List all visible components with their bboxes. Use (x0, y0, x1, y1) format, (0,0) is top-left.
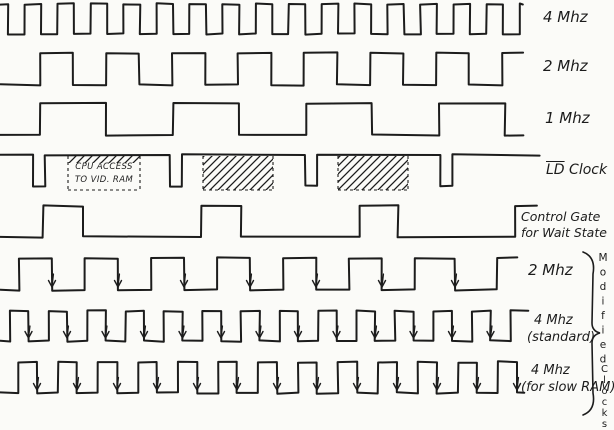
label-ld-overline: LD (546, 162, 565, 178)
label-1mhz: 1 Mhz (545, 110, 590, 127)
label-ld-clock-rest: Clock (565, 162, 608, 178)
label-modified-4mhz-standard: 4 Mhz (standard) (527, 313, 595, 346)
label-ld-clock: LD Clock (546, 162, 607, 178)
label-4mhz-standard-line2: (standard) (527, 330, 595, 347)
label-control-gate: Control Gate for Wait State (521, 209, 607, 241)
label-control-gate-line1: Control Gate (521, 209, 607, 225)
label-4mhz-standard-line1: 4 Mhz (527, 313, 595, 330)
label-2mhz: 2 Mhz (543, 58, 588, 75)
cpu-access-line1: CPU ACCESS (68, 161, 140, 174)
label-clocks-vertical: Clocks (599, 364, 610, 430)
cpu-access-line2: TO VID. RAM (68, 174, 140, 187)
cpu-access-annotation: CPU ACCESS TO VID. RAM (68, 161, 140, 189)
label-modified-vertical: Modified (597, 252, 609, 368)
timing-diagram-page: CPU ACCESS TO VID. RAM 4 Mhz 2 Mhz 1 Mhz… (0, 0, 614, 419)
label-control-gate-line2: for Wait State (521, 225, 607, 241)
label-4mhz: 4 Mhz (543, 9, 588, 26)
label-modified-2mhz: 2 Mhz (528, 262, 573, 279)
